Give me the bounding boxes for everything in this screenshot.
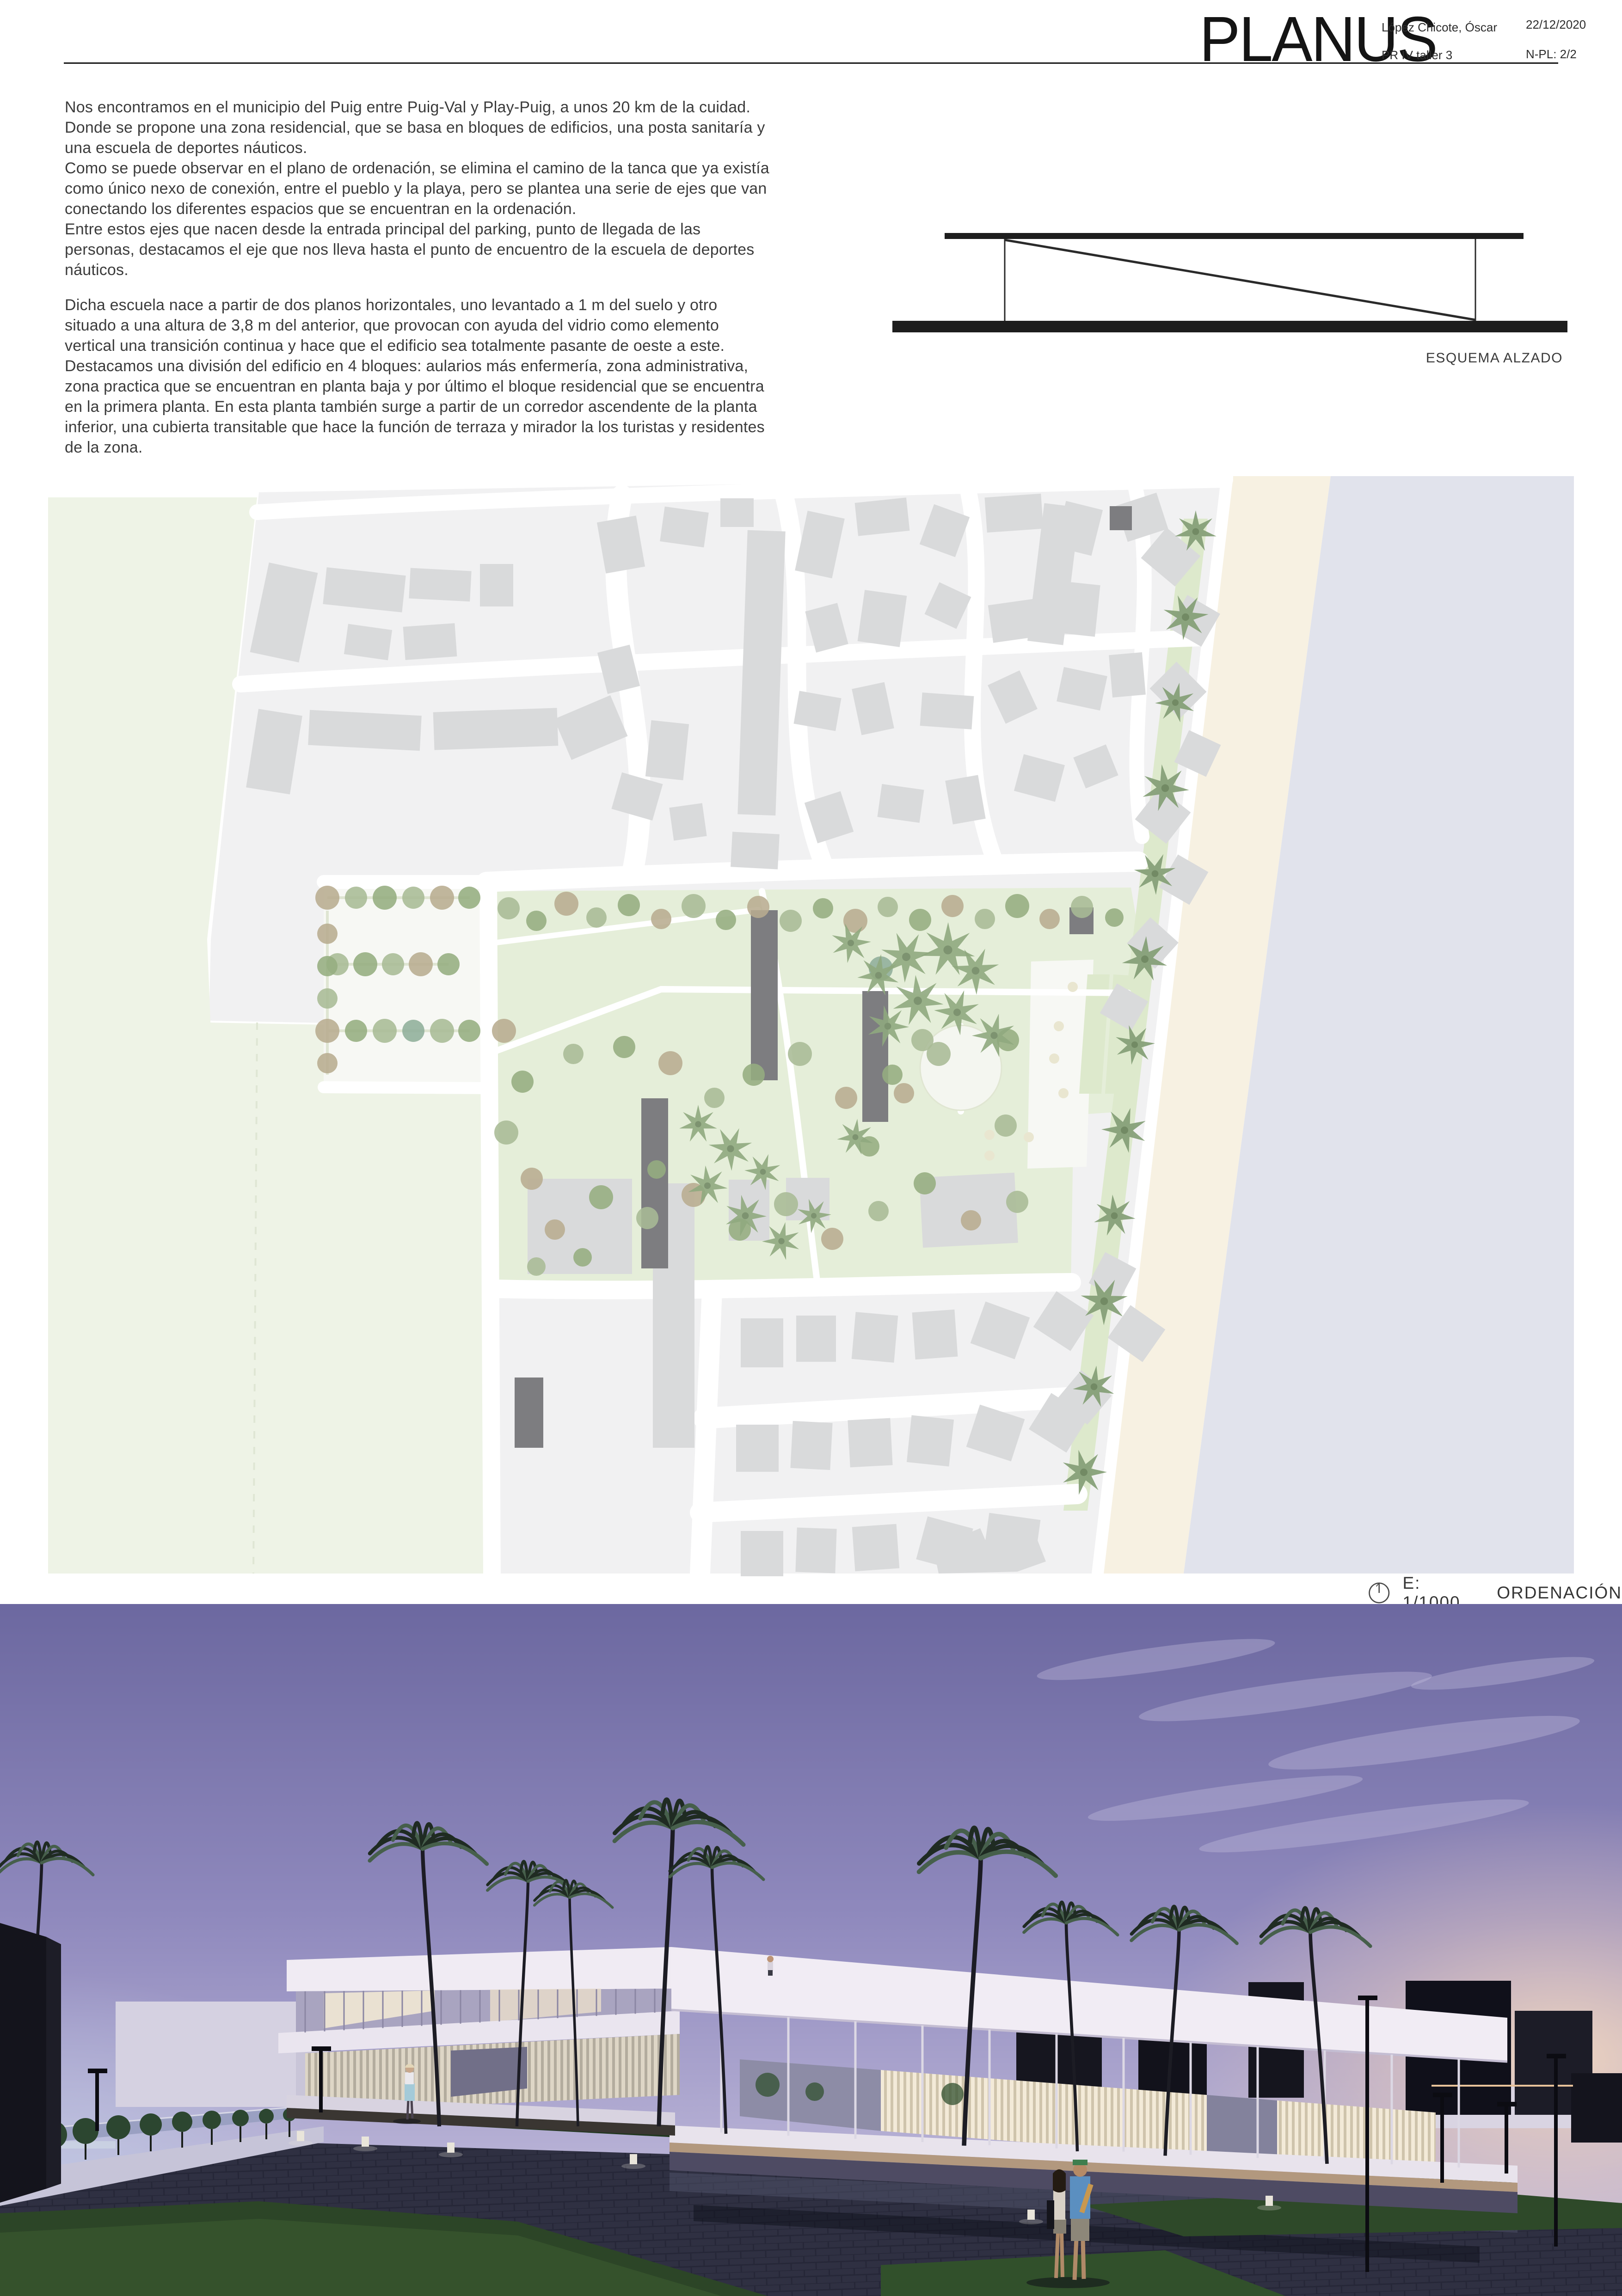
intro-paragraph: Dicha escuela nace a partir de dos plano… [65, 295, 769, 458]
date-label: 22/12/2020 [1526, 18, 1586, 32]
elevation-caption: ESQUEMA ALZADO [1426, 350, 1563, 366]
intro-paragraph: Entre estos ejes que nacen desde la entr… [65, 219, 769, 280]
page-title: PLANUS [1199, 3, 1437, 76]
elevation-diagram: ESQUEMA ALZADO [892, 221, 1567, 373]
intro-text: Nos encontramos en el municipio del Puig… [65, 97, 769, 458]
author-name: López Chicote, Óscar [1382, 20, 1497, 35]
elevation-top-slab [945, 233, 1524, 239]
north-indicator-icon [1368, 1580, 1390, 1606]
elevation-bottom-slab [892, 321, 1567, 332]
sheet-number: N-PL: 2/2 [1526, 47, 1577, 61]
intro-paragraph: Como se puede observar en el plano de or… [65, 158, 769, 219]
header-rule [64, 62, 1558, 64]
elevation-diagonal [1005, 240, 1475, 320]
intro-paragraph: Nos encontramos en el municipio del Puig… [65, 97, 769, 158]
presentation-board: PLANUS López Chicote, Óscar 22/12/2020 P… [0, 0, 1622, 2296]
site-plan-map [0, 453, 1622, 1576]
plan-name: ORDENACIÓN [1497, 1583, 1622, 1603]
course-label: PR IV taller 3 [1382, 48, 1452, 62]
exterior-render-image [0, 1604, 1622, 2296]
